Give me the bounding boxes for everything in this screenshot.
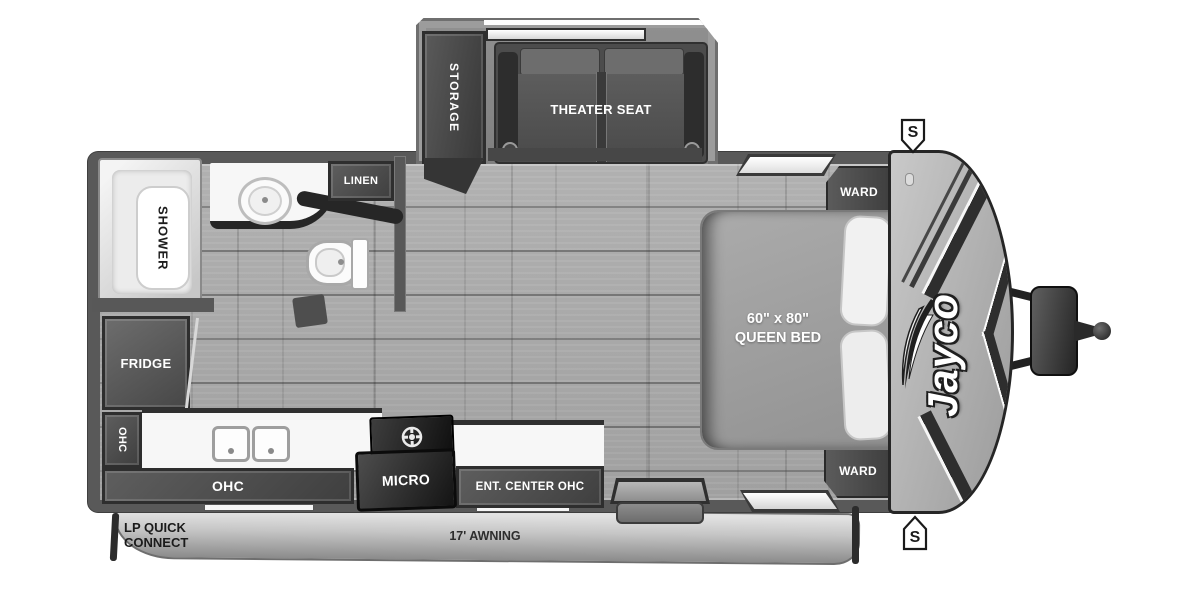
bathroom-faucet-icon — [262, 197, 268, 203]
bathroom-wall-right — [394, 156, 406, 312]
fridge: FRIDGE — [102, 316, 190, 410]
ohc-upper-cabinet: OHC — [102, 412, 142, 468]
lp-quick-connect-label: LP QUICK CONNECT — [124, 521, 188, 551]
kitchen-drain-right-icon — [268, 448, 274, 454]
bedroom-window-bottom-glass — [743, 493, 837, 509]
awning-end-left — [110, 513, 120, 561]
bedroom-window-top-glass — [739, 157, 833, 173]
kitchen-counter-right — [448, 420, 604, 468]
ent-center-ohc: ENT. CENTER OHC — [456, 466, 604, 508]
bed-type-label: QUEEN BED — [710, 329, 846, 348]
entry-door — [610, 478, 710, 504]
storage-label: STORAGE — [447, 63, 461, 133]
bed-pillow-top — [839, 215, 893, 327]
cap-chevron-upper — [982, 255, 1014, 339]
theater-headrest-left — [520, 48, 600, 76]
stabilizer-rear-label: S — [910, 529, 921, 546]
entry-door-panel — [614, 482, 706, 501]
bed-size-label: 60" x 80" — [710, 310, 846, 329]
ohc-upper-label: OHC — [116, 427, 128, 452]
stabilizer-badge-front: S — [900, 118, 926, 154]
entry-step — [616, 502, 704, 524]
cap-chevron-lower — [982, 329, 1014, 413]
propane-tank-cover — [1030, 286, 1078, 376]
toilet-flush-icon — [338, 259, 344, 265]
microwave: MICRO — [355, 448, 457, 511]
theater-seat-label: THEATER SEAT — [496, 102, 706, 117]
ohc-lower-cabinet: OHC — [102, 468, 354, 504]
bedroom-window-bottom — [740, 490, 840, 512]
kitchen-sink-right — [252, 426, 290, 462]
lp-line2: CONNECT — [124, 536, 188, 551]
awning-end-right — [852, 506, 859, 564]
cap-hinge-dot — [905, 173, 914, 186]
kitchen-drain-left-icon — [228, 448, 234, 454]
slideout-theater: STORAGE THEATER SEAT — [416, 18, 718, 164]
linen-cabinet: LINEN — [328, 161, 394, 201]
stabilizer-badge-rear: S — [902, 515, 928, 551]
bathroom-wall-stub — [292, 294, 328, 328]
slideout-threshold — [488, 148, 702, 161]
toilet-tank — [351, 238, 369, 290]
bed-label: 60" x 80" QUEEN BED — [710, 310, 846, 348]
rv-floorplan: 17' AWNING LP QUICK CONNECT STORAGE THEA… — [0, 0, 1200, 600]
slideout-window — [486, 28, 646, 41]
micro-label: MICRO — [382, 471, 431, 489]
theater-headrest-right — [604, 48, 684, 76]
storage-cabinet: STORAGE — [422, 31, 486, 164]
shower-pan: SHOWER — [136, 186, 190, 290]
slideout-window-line — [484, 20, 708, 25]
hitch-ball — [1093, 322, 1111, 340]
bathroom-wall-bottom — [92, 298, 214, 312]
shower-label: SHOWER — [156, 206, 171, 271]
lp-line1: LP QUICK — [124, 521, 188, 536]
queen-bed: 60" x 80" QUEEN BED — [700, 210, 898, 450]
bottom-window-galley — [204, 504, 314, 511]
fridge-label: FRIDGE — [121, 356, 172, 371]
front-cap: Jayco — [888, 150, 1014, 514]
bedroom-window-top — [736, 154, 836, 176]
ward-front-label: WARD — [840, 185, 878, 199]
jayco-logo: Jayco — [919, 255, 967, 455]
stove-burner-icon — [400, 425, 425, 450]
wardrobe-rear: WARD — [824, 444, 892, 498]
theater-seat: THEATER SEAT — [494, 42, 708, 164]
kitchen-sink-left — [212, 426, 250, 462]
linen-label: LINEN — [344, 175, 379, 187]
bed-pillow-bottom — [839, 329, 893, 441]
ent-center-label: ENT. CENTER OHC — [476, 481, 585, 493]
ohc-lower-label: OHC — [212, 478, 244, 494]
ward-rear-label: WARD — [839, 464, 877, 478]
stabilizer-front-label: S — [908, 124, 919, 141]
awning-label: 17' AWNING — [420, 529, 550, 543]
